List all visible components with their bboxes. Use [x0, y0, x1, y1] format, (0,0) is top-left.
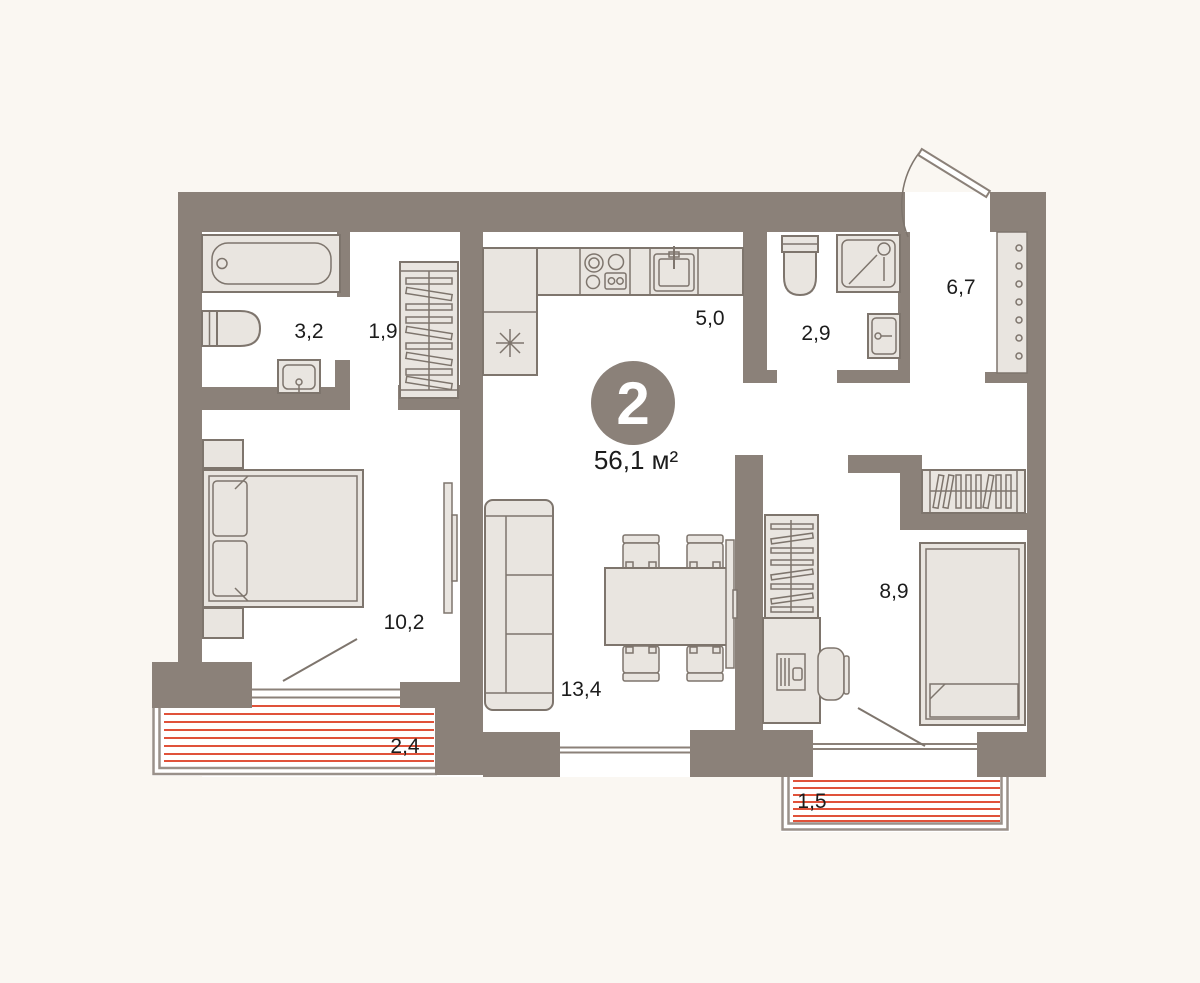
room-label-entry-hall: 6,7	[946, 276, 975, 299]
fridge-icon	[496, 329, 524, 357]
double-bed-icon	[203, 470, 363, 607]
room-label-hallway: 1,9	[368, 320, 397, 343]
single-bed-icon	[920, 543, 1025, 725]
bathtub-icon	[202, 235, 340, 292]
room-label-balcony-2: 1,5	[797, 790, 826, 813]
toilet-icon	[202, 311, 260, 346]
wardrobe-icon	[400, 262, 458, 398]
office-chair	[818, 648, 849, 700]
wardrobe-icon-2	[765, 515, 818, 618]
room-label-bedroom: 10,2	[384, 611, 425, 634]
toilet-icon-2	[782, 236, 818, 295]
sofa-icon	[485, 500, 553, 710]
room-label-bathroom: 3,2	[294, 320, 323, 343]
room-label-living-room: 13,4	[561, 678, 602, 701]
rooms-count-number: 2	[616, 370, 649, 437]
room-label-bedroom-2: 8,9	[879, 580, 908, 603]
washbasin-icon	[278, 360, 320, 394]
floor-plan: 3,2 1,9 5,0 2,9 6,7 10,2 13,4 8,9 2,4 1,…	[0, 0, 1200, 983]
room-label-shower-room: 2,9	[801, 322, 830, 345]
total-area-label: 56,1 м²	[594, 445, 679, 475]
desk-icon	[763, 618, 820, 723]
room-label-balcony: 2,4	[390, 735, 420, 758]
rooms-count-badge: 2	[591, 361, 675, 445]
washbasin-icon-2	[868, 314, 900, 358]
room-label-kitchen: 5,0	[695, 307, 724, 330]
shower-icon	[837, 235, 900, 292]
wardrobe-icon-3	[922, 470, 1025, 513]
dining-table	[605, 568, 733, 645]
coat-rack-icon	[997, 232, 1027, 373]
